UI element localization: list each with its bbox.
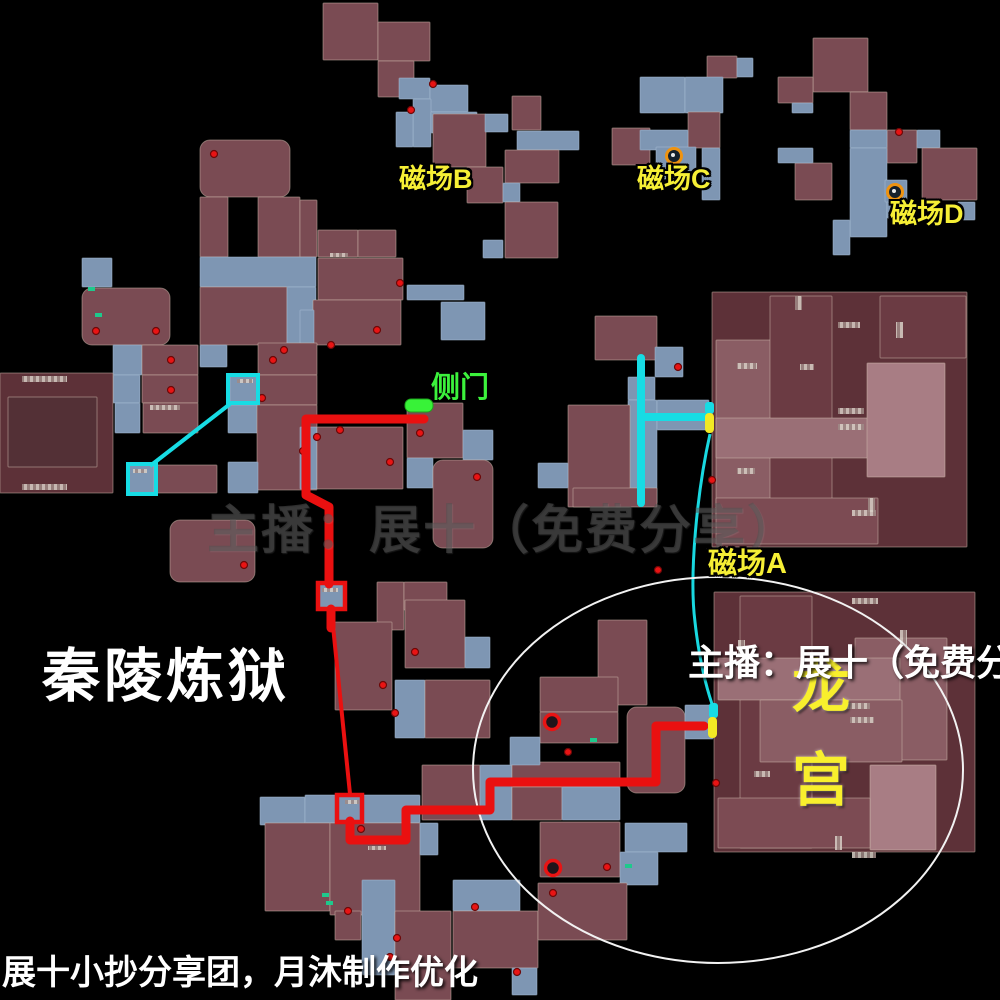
door-marker <box>590 738 597 742</box>
map-room <box>335 911 361 940</box>
map-room <box>405 600 465 668</box>
map-room <box>850 92 887 130</box>
streamer-watermark-text: 主播：展十（免费分享） <box>688 645 1000 681</box>
stairs-hatch <box>838 408 864 414</box>
enemy-dot-marker <box>675 364 682 371</box>
stairs-hatch <box>368 846 386 850</box>
label-field-c: 磁场C <box>637 166 711 193</box>
enemy-dot-marker <box>417 430 424 437</box>
map-room <box>640 77 685 113</box>
map-room <box>425 680 490 738</box>
map-room <box>155 465 217 493</box>
map-room <box>778 77 813 103</box>
enemy-dot-marker <box>93 328 100 335</box>
enemy-dot-marker <box>168 387 175 394</box>
enemy-dot-marker <box>713 780 720 787</box>
map-room <box>887 130 917 163</box>
map-room <box>867 363 945 477</box>
enemy-dot-marker <box>896 129 903 136</box>
enemy-dot-marker <box>397 280 404 287</box>
stairs-hatch <box>737 363 757 369</box>
stairs-hatch <box>852 852 876 858</box>
stairs-hatch <box>795 296 802 310</box>
enemy-dot-marker <box>430 81 437 88</box>
map-room <box>512 787 562 820</box>
map-graphics <box>0 0 1000 1000</box>
map-room <box>300 200 317 257</box>
enemy-dot-marker <box>211 151 218 158</box>
map-room <box>922 148 977 200</box>
map-room <box>82 258 112 287</box>
stairs-hatch <box>852 598 878 604</box>
map-room <box>113 375 140 403</box>
map-room <box>115 403 140 433</box>
map-room <box>880 296 966 358</box>
map-room <box>430 85 468 112</box>
map-room <box>399 78 430 99</box>
enemy-dot-marker <box>655 567 662 574</box>
map-room <box>113 345 142 375</box>
enemy-dot-marker <box>153 328 160 335</box>
enemy-dot-marker <box>472 904 479 911</box>
stairs-hatch <box>838 322 860 328</box>
map-room <box>813 38 868 92</box>
map-room <box>395 680 425 738</box>
stairs-hatch <box>896 322 903 338</box>
stairs-hatch <box>737 468 755 474</box>
map-room <box>323 3 378 60</box>
map-room <box>441 302 485 340</box>
enemy-dot-marker <box>709 477 716 484</box>
label-field-d: 磁场D <box>890 201 964 228</box>
map-room <box>433 114 486 167</box>
label-side-door: 侧门 <box>431 374 489 403</box>
stairs-hatch <box>22 376 67 382</box>
magnetic-field-icon-core <box>892 189 896 193</box>
map-room <box>685 77 723 113</box>
map-room <box>540 677 618 712</box>
map-room <box>8 397 97 467</box>
pickup-marker-cyan <box>705 402 714 414</box>
map-room <box>300 310 314 345</box>
stairs-hatch <box>868 498 875 512</box>
enemy-dot-marker <box>392 710 399 717</box>
map-room <box>453 880 520 911</box>
map-room <box>562 787 620 820</box>
map-room <box>538 463 568 488</box>
map-room <box>463 430 493 460</box>
map-room <box>200 197 228 257</box>
map-room <box>407 458 433 488</box>
enemy-dot-marker <box>345 908 352 915</box>
stairs-hatch <box>838 424 864 430</box>
map-room <box>200 257 316 287</box>
map-room <box>420 823 438 855</box>
map-room <box>335 622 392 710</box>
stairs-hatch <box>754 771 770 777</box>
stairs-hatch <box>150 405 180 410</box>
door-marker <box>95 313 102 317</box>
stairs-hatch <box>22 484 67 490</box>
map-room <box>313 300 401 345</box>
stairs-hatch <box>345 800 359 804</box>
map-room <box>917 130 940 148</box>
map-room <box>870 765 936 850</box>
stairs-hatch <box>835 836 842 850</box>
map-room <box>200 140 290 197</box>
enemy-dot-marker <box>270 357 277 364</box>
map-canvas: 主播：展十（免费分享） 磁场B 磁场C 磁场D 磁场A 侧门 秦陵炼狱 龙宫 主… <box>0 0 1000 1000</box>
door-marker <box>326 901 333 905</box>
pickup-marker-yellow <box>705 413 714 433</box>
map-room <box>505 150 559 183</box>
map-room <box>655 347 683 377</box>
enemy-dot-marker <box>328 342 335 349</box>
enemy-dot-marker <box>374 327 381 334</box>
magnetic-field-icon-core <box>671 153 675 157</box>
map-room <box>510 737 540 765</box>
enemy-dot-marker <box>550 890 557 897</box>
enemy-dot-marker <box>281 347 288 354</box>
map-room <box>413 99 431 147</box>
map-room <box>512 96 541 130</box>
enemy-dot-marker <box>408 107 415 114</box>
map-room <box>378 22 430 61</box>
enemy-dot-marker <box>358 826 365 833</box>
side-door-marker <box>405 399 433 412</box>
credit-text: 展十小抄分享团，月沐制作优化 <box>2 956 478 990</box>
enemy-dot-marker <box>387 459 394 466</box>
map-room <box>483 240 503 258</box>
stairs-hatch <box>800 364 814 370</box>
map-room <box>595 316 657 360</box>
map-room <box>778 148 813 163</box>
stairs-hatch <box>237 379 253 383</box>
map-room <box>850 148 887 237</box>
map-room <box>396 112 413 147</box>
map-room <box>505 202 558 258</box>
enemy-dot-marker <box>474 474 481 481</box>
map-room <box>318 258 403 300</box>
map-room <box>228 405 258 433</box>
pickup-marker-yellow <box>708 717 717 738</box>
map-room <box>707 56 737 78</box>
map-room <box>737 58 753 77</box>
map-room <box>625 823 687 852</box>
enemy-dot-marker <box>394 935 401 942</box>
map-room <box>200 345 227 367</box>
stairs-hatch <box>133 469 147 473</box>
enemy-dot-marker <box>604 864 611 871</box>
map-room <box>688 112 720 148</box>
enemy-ring-marker <box>546 861 561 876</box>
pickup-marker-cyan <box>709 703 718 718</box>
map-room <box>318 230 358 257</box>
enemy-dot-marker <box>314 434 321 441</box>
label-field-a: 磁场A <box>708 550 787 579</box>
map-room <box>358 230 396 257</box>
enemy-dot-marker <box>337 427 344 434</box>
enemy-ring-marker <box>545 715 560 730</box>
enemy-dot-marker <box>168 357 175 364</box>
map-room <box>620 852 658 885</box>
stairs-hatch <box>330 253 348 257</box>
enemy-dot-marker <box>241 562 248 569</box>
map-room <box>305 795 338 823</box>
enemy-dot-marker <box>380 682 387 689</box>
map-room <box>850 130 887 148</box>
stairs-hatch <box>322 588 338 592</box>
map-room <box>485 114 508 132</box>
map-room <box>128 464 154 493</box>
map-room <box>258 375 317 405</box>
map-room <box>200 287 287 345</box>
map-room <box>517 131 579 150</box>
door-marker <box>625 864 632 868</box>
map-room <box>503 183 520 202</box>
map-room <box>465 637 490 668</box>
map-room <box>795 163 832 200</box>
door-marker <box>322 893 329 897</box>
enemy-dot-marker <box>412 649 419 656</box>
map-room <box>258 343 317 375</box>
map-room <box>258 197 300 257</box>
door-marker <box>88 287 95 291</box>
map-room <box>260 797 305 825</box>
map-room <box>833 220 850 255</box>
map-room <box>407 285 464 300</box>
map-room <box>265 823 330 911</box>
map-room <box>228 462 258 493</box>
label-field-b: 磁场B <box>399 166 473 193</box>
map-title: 秦陵炼狱 <box>42 648 290 706</box>
enemy-dot-marker <box>565 749 572 756</box>
enemy-dot-marker <box>514 969 521 976</box>
map-room <box>792 103 813 113</box>
